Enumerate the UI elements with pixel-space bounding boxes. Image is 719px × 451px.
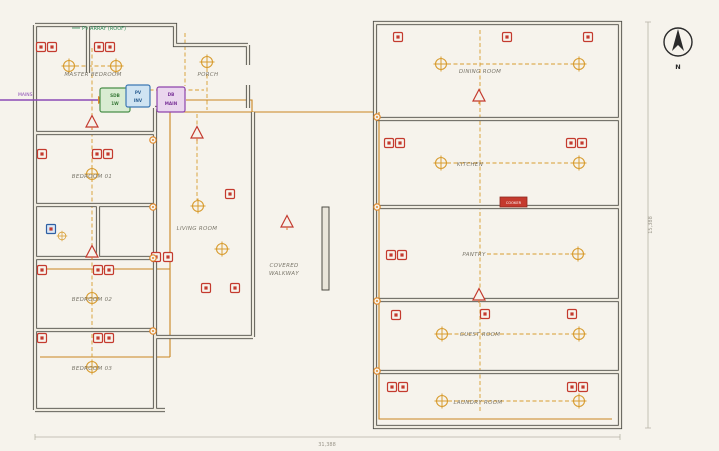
ceiling-light-icon[interactable] [572,156,587,171]
junction-node-icon[interactable] [150,204,156,210]
socket-outlet-icon[interactable] [567,139,576,148]
ceiling-light-icon[interactable] [435,327,450,342]
svg-text:DB: DB [168,92,175,97]
room-label-guest-room: GUEST ROOM [460,332,501,338]
socket-outlet-icon[interactable] [106,43,115,52]
room-label-living-room: LIVING ROOM [177,226,218,232]
ceiling-light-icon[interactable] [572,57,587,72]
junction-node-icon[interactable] [150,137,156,143]
socket-outlet-icon[interactable] [48,43,57,52]
socket-outlet-icon[interactable] [584,33,593,42]
socket-outlet-icon[interactable] [578,139,587,148]
room-label-porch: PORCH [198,72,219,78]
ceiling-light-icon[interactable] [57,231,68,242]
socket-outlet-icon[interactable] [93,150,102,159]
walls-right-building [375,23,620,427]
dimension-text-bottom: 31,388 [318,442,336,448]
distribution-board-main[interactable]: DB MAIN [157,87,185,112]
svg-text:MAIN: MAIN [165,101,178,106]
socket-outlet-icon[interactable] [579,383,588,392]
walkway-wall [322,207,329,290]
socket-outlet-icon[interactable] [231,284,240,293]
socket-outlet-icon[interactable] [164,253,173,262]
room-label-covered-walkway: WALKWAY [269,271,299,277]
ceiling-light-icon[interactable] [200,55,215,70]
north-compass-icon: N [664,28,692,71]
socket-outlet-icon[interactable] [392,311,401,320]
junction-node-icon[interactable] [150,328,156,334]
junction-node-icon[interactable] [374,368,380,374]
room-label-covered-walkway: COVERED [269,263,298,269]
pv-array-label: PV ARRAY (ROOF) [82,26,126,32]
socket-outlet-icon[interactable] [396,139,405,148]
socket-outlet-icon[interactable] [94,266,103,275]
dimension-text-right: 15,388 [648,216,654,234]
socket-outlet-icon[interactable] [95,43,104,52]
junction-node-icon[interactable] [374,204,380,210]
svg-text:COOKER: COOKER [506,201,522,205]
room-label-bedroom-01: BEDROOM 01 [72,174,112,180]
room-label-laundry-room: LAUNDRY ROOM [454,400,503,406]
socket-outlet-icon[interactable] [226,190,235,199]
switch-icon[interactable] [191,127,203,142]
socket-outlet-icon[interactable] [394,33,403,42]
mains-label: MAINS [18,92,33,98]
socket-outlet-icon[interactable] [568,383,577,392]
socket-outlet-icon[interactable] [105,334,114,343]
socket-outlet-icon[interactable] [503,33,512,42]
junction-node-icon[interactable] [150,255,156,261]
room-label-bedroom-03: BEDROOM 03 [72,366,113,372]
svg-text:SDB: SDB [110,93,120,98]
socket-outlet-icon[interactable] [38,150,47,159]
socket-outlet-icon[interactable] [388,383,397,392]
ceiling-light-icon[interactable] [434,156,449,171]
ceiling-light-icon[interactable] [435,394,450,409]
junction-node-icon[interactable] [374,114,380,120]
socket-outlet-icon[interactable] [481,310,490,319]
socket-outlets [37,33,593,392]
socket-outlet-icon[interactable] [385,139,394,148]
switch-icon[interactable] [86,116,98,131]
svg-text:PV: PV [135,90,142,95]
socket-outlet-icon[interactable] [104,150,113,159]
socket-outlet-icon[interactable] [398,251,407,260]
compass-north-label: N [675,63,680,71]
ceiling-light-icon[interactable] [572,327,587,342]
room-label-master-bedroom: MASTER BEDROOM [64,72,121,78]
svg-text:1W: 1W [111,101,119,106]
junction-node-icon[interactable] [374,298,380,304]
socket-outlet-icon[interactable] [399,383,408,392]
ceiling-light-icon[interactable] [215,242,230,257]
svg-text:INV: INV [134,98,143,103]
socket-outlet-icon[interactable] [105,266,114,275]
ceiling-light-icon[interactable] [572,394,587,409]
ceiling-light-icon[interactable] [434,57,449,72]
exhaust-fan-icon[interactable] [47,225,56,234]
socket-outlet-icon[interactable] [38,266,47,275]
mains-supply-line[interactable]: MAINS [0,92,106,104]
switch-icon[interactable] [281,216,293,231]
ceiling-light-icon[interactable] [571,247,586,262]
socket-outlet-icon[interactable] [94,334,103,343]
inverter-panel[interactable]: PV INV [126,85,150,107]
cooker-unit[interactable]: COOKER [500,197,527,207]
socket-outlet-icon[interactable] [38,334,47,343]
dimension-bottom [35,434,620,440]
switch-icon[interactable] [473,90,485,105]
socket-outlet-icon[interactable] [387,251,396,260]
socket-outlet-icon[interactable] [37,43,46,52]
walls-left-building [35,25,253,410]
socket-outlet-icon[interactable] [568,310,577,319]
room-label-pantry: PANTRY [462,252,486,258]
room-label-dining-room: DINING ROOM [459,69,501,75]
socket-outlet-icon[interactable] [202,284,211,293]
room-label-kitchen: KITCHEN [457,162,483,168]
floor-plan-canvas[interactable]: MAINS PV ARRAY (ROOF) SDB 1W PV INV DB M… [0,0,719,451]
room-label-bedroom-02: BEDROOM 02 [72,297,113,303]
ceiling-light-icon[interactable] [191,199,206,214]
